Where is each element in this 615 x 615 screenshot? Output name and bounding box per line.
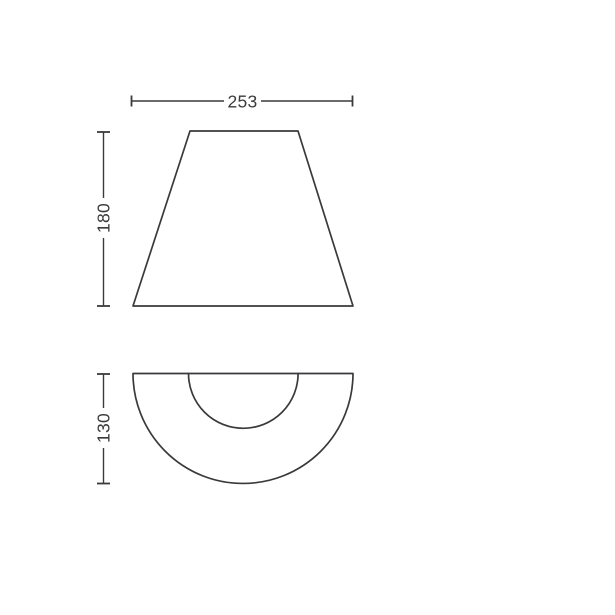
dimension-height-label: 180 xyxy=(94,203,114,233)
bottom-view-inner-semicircle xyxy=(189,374,299,429)
dimension-drawing: 253 180 130 xyxy=(0,0,615,615)
dimension-width: 253 xyxy=(132,92,353,112)
dimension-width-label: 253 xyxy=(227,92,257,112)
front-view-trapezoid xyxy=(133,131,353,306)
dimension-depth: 130 xyxy=(94,374,114,484)
dimension-drawing-page: 253 180 130 xyxy=(0,0,615,615)
bottom-view xyxy=(133,374,353,484)
dimension-height: 180 xyxy=(94,132,114,306)
dimension-depth-label: 130 xyxy=(94,413,114,443)
